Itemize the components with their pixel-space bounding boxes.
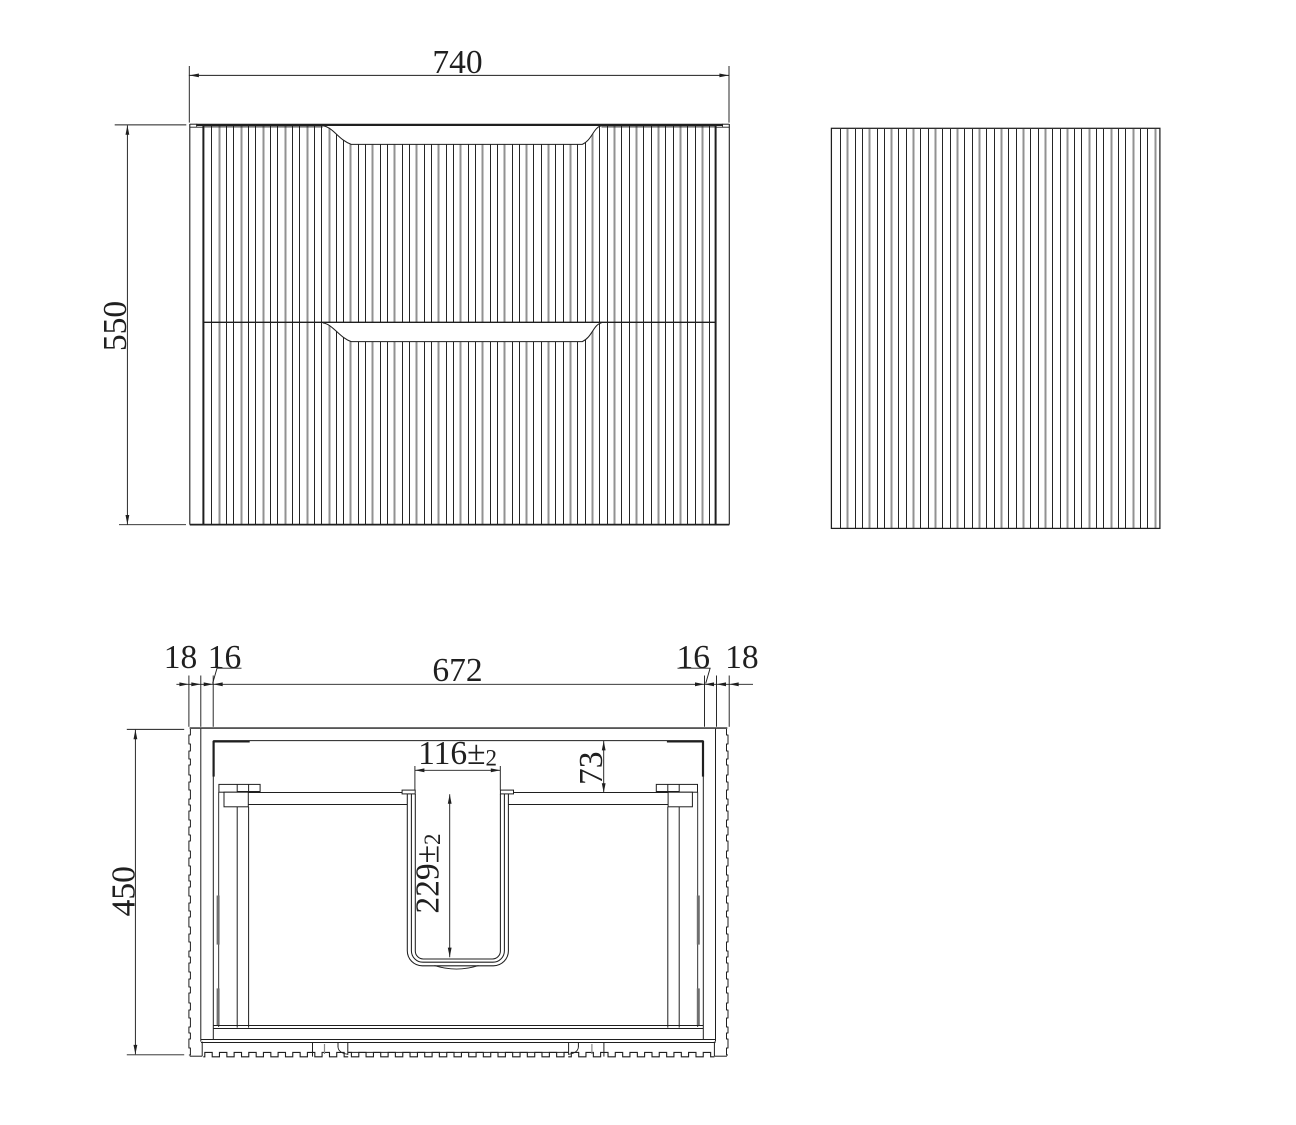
- svg-text:550: 550: [97, 301, 134, 351]
- svg-text:116±2: 116±2: [418, 735, 497, 772]
- svg-text:16: 16: [208, 639, 242, 676]
- svg-text:229±2: 229±2: [410, 833, 447, 913]
- svg-text:18: 18: [164, 639, 198, 676]
- svg-text:16: 16: [677, 639, 711, 676]
- svg-text:73: 73: [573, 751, 610, 785]
- svg-text:740: 740: [432, 44, 482, 81]
- svg-text:450: 450: [106, 866, 143, 916]
- svg-text:672: 672: [432, 652, 482, 689]
- svg-text:18: 18: [725, 639, 759, 676]
